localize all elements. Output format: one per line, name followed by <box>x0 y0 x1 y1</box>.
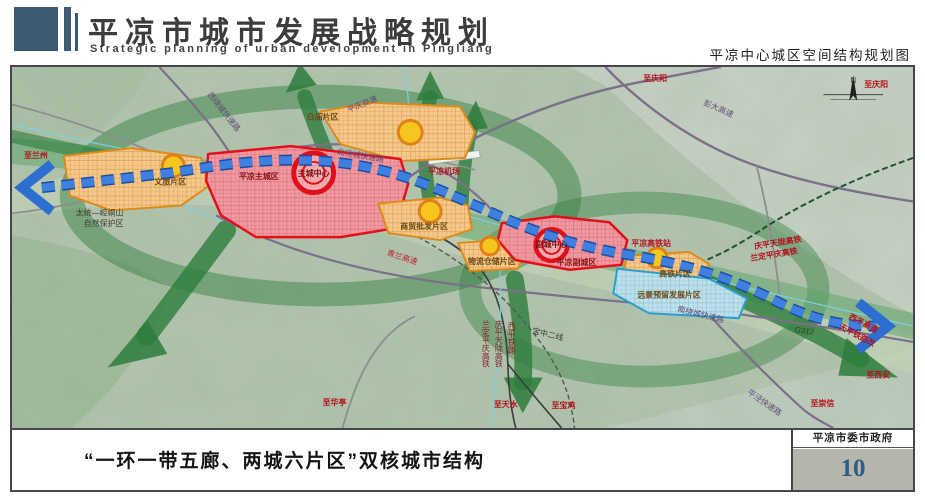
label-to-lanzhou: 至兰州 <box>24 150 48 160</box>
label-zone-shangmao: 商贸批发片区 <box>400 221 448 231</box>
figure-caption: “一环一带五廊、两城六片区”双核城市结构 <box>84 446 485 473</box>
publisher-page-box: 平凉市委市政府 10 <box>791 430 913 490</box>
label-compass-n: N <box>850 76 856 85</box>
label-airport: 平凉机场 <box>428 166 460 176</box>
label-nature-reserve-1: 太统—崆峒山 <box>76 207 124 217</box>
publisher-name: 平凉市委市政府 <box>793 430 913 448</box>
page-number: 10 <box>793 449 913 491</box>
label-nature-reserve-2: 自然保护区 <box>84 218 124 228</box>
label-to-chongxin: 至崇信 <box>810 398 834 408</box>
logo-bar <box>64 7 71 51</box>
label-main-center: 主城中心 <box>298 168 330 178</box>
planning-map: 至兰州西绕城快速路平庆高速至庆阳彭大高速至庆阳平凉机场白庙片区北绕城快速路平凉主… <box>10 65 915 430</box>
label-zone-wenlv: 文旅片区 <box>154 177 186 187</box>
page-subtitle-english: Strategic planning of urban development … <box>90 43 494 55</box>
label-qptl-railway: 庆平天陇高铁 <box>494 319 503 368</box>
label-zone-reserved: 远景预留发展片区 <box>637 289 701 299</box>
label-ldpq-railway: 兰定平庆高铁 <box>481 319 490 368</box>
planning-map-svg: 至兰州西绕城快速路平庆高速至庆阳彭大高速至庆阳平凉机场白庙片区北绕城快速路平凉主… <box>12 67 913 428</box>
logo-square <box>14 7 58 51</box>
label-zone-gaotie: 高铁片区 <box>659 269 691 279</box>
label-hsr-station: 平凉高铁站 <box>631 238 671 248</box>
logo-bar-thin <box>75 13 78 51</box>
label-xiping-railway: 西平铁路 <box>507 322 516 354</box>
label-sub-center: 副城中心 <box>536 239 568 249</box>
label-zone-baimiao: 白庙片区 <box>307 111 339 121</box>
label-main-city: 平凉主城区 <box>239 171 279 181</box>
label-sub-city: 平凉副城区 <box>557 257 597 267</box>
label-to-qingyang-n: 至庆阳 <box>643 73 667 83</box>
label-to-tianshui: 至天水 <box>494 399 518 409</box>
map-figure-title: 平凉中心城区空间结构规划图 <box>710 44 912 64</box>
label-to-xian: 至西安 <box>866 370 890 380</box>
label-to-huating: 至华亭 <box>323 397 347 407</box>
planning-document-page: 平凉市城市发展战略规划 Strategic planning of urban … <box>0 0 925 500</box>
label-zone-wuliu: 物流仓储片区 <box>468 256 516 266</box>
label-to-qingyang-ne: 至庆阳 <box>864 79 888 89</box>
document-header: 平凉市城市发展战略规划 Strategic planning of urban … <box>0 0 925 65</box>
label-to-baoji: 至宝鸡 <box>552 400 576 410</box>
document-footer: “一环一带五廊、两城六片区”双核城市结构 平凉市委市政府 10 <box>10 430 915 492</box>
